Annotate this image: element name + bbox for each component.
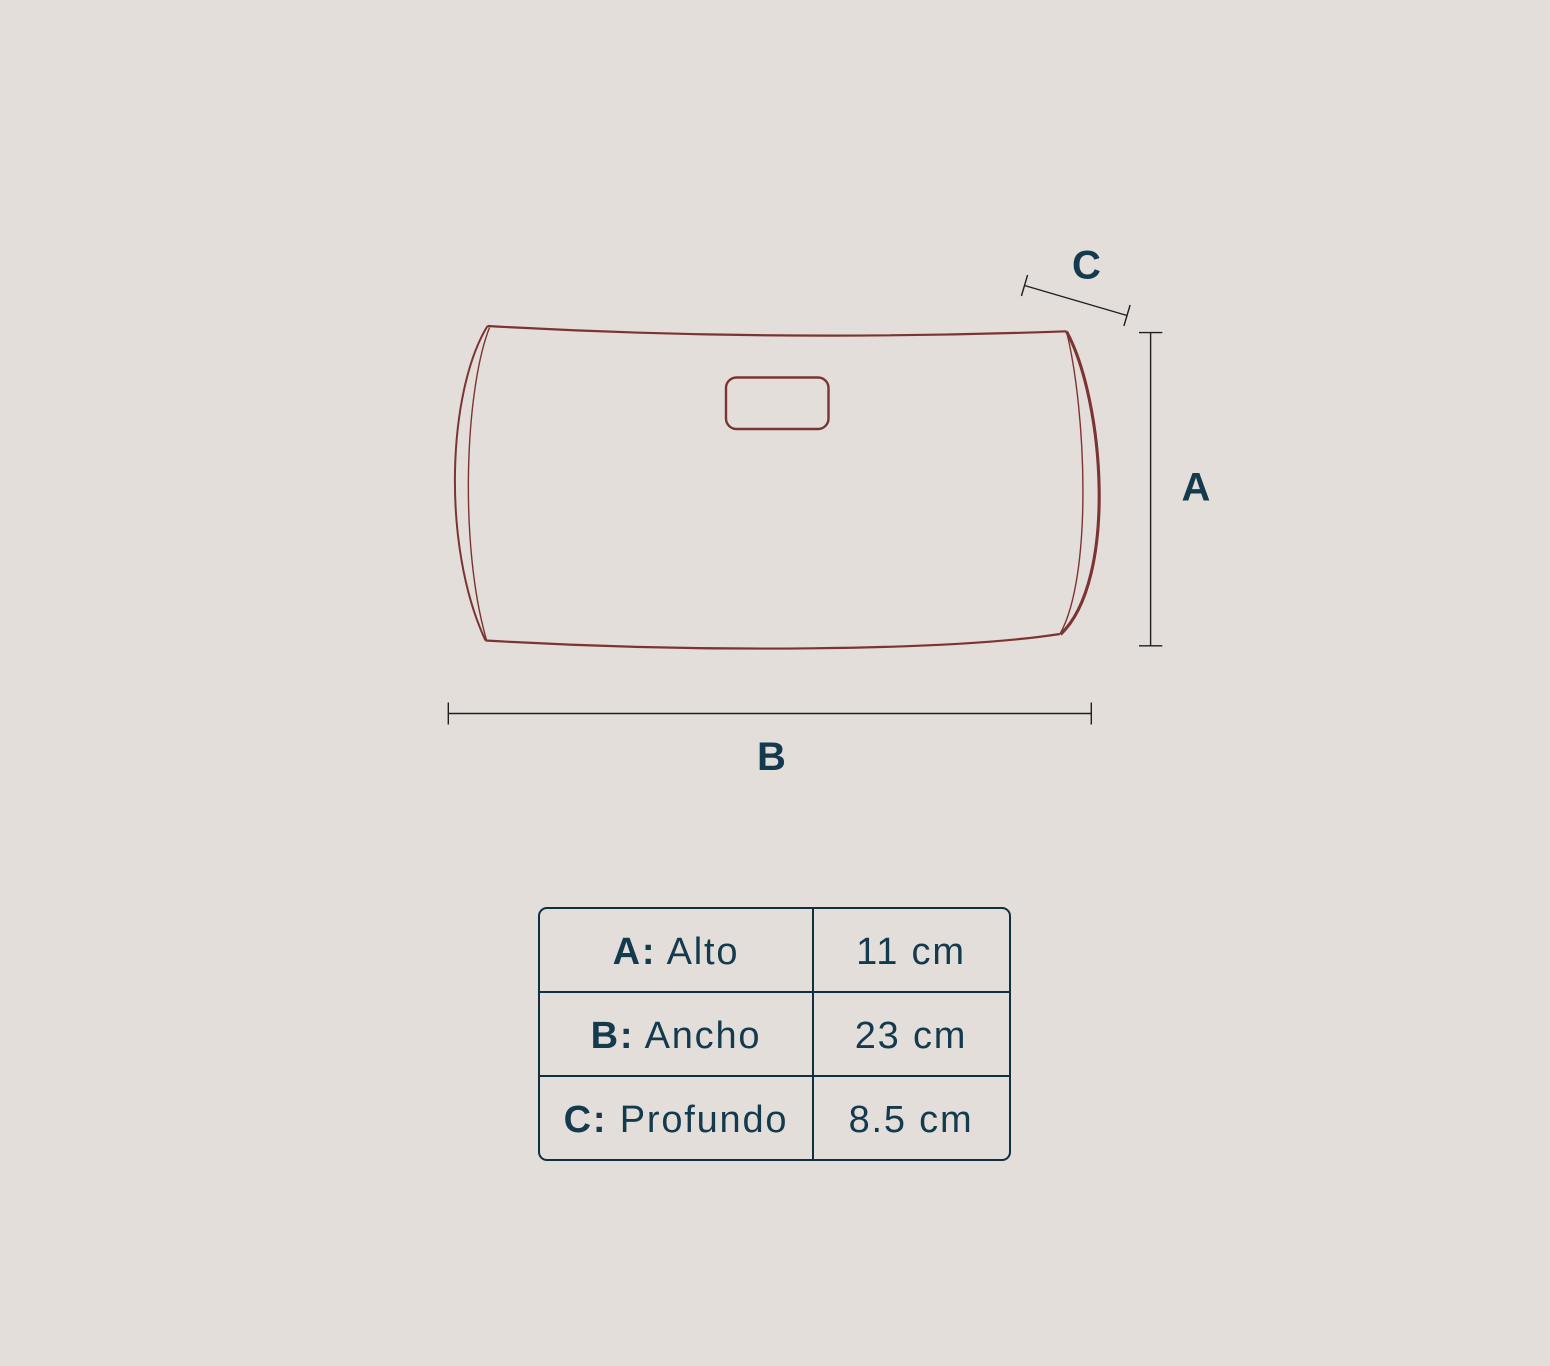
svg-text:C: C [1072, 244, 1101, 288]
svg-text:A: A [1182, 466, 1211, 510]
svg-text:B: B [757, 735, 786, 779]
